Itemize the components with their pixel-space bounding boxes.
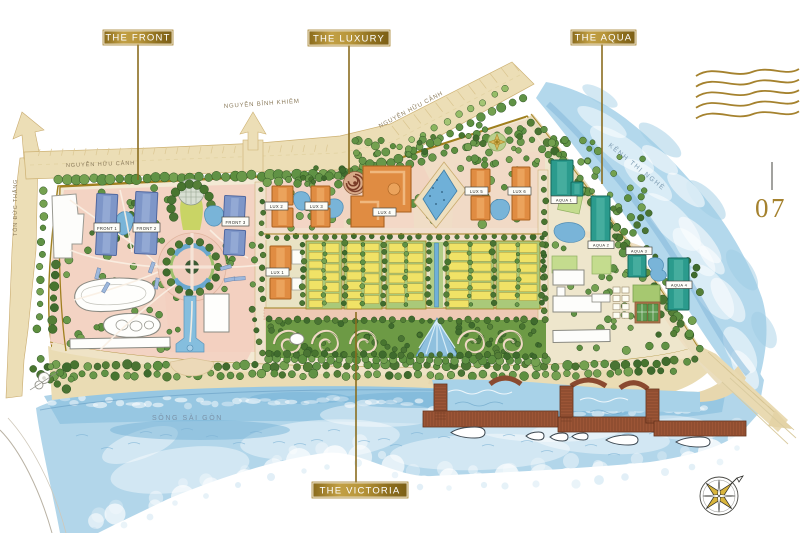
svg-text:THE AQUA: THE AQUA	[575, 33, 633, 44]
svg-text:LUX 4: LUX 4	[378, 210, 392, 215]
svg-text:FRONT 1: FRONT 1	[97, 226, 117, 231]
svg-text:THE VICTORIA: THE VICTORIA	[320, 486, 401, 497]
svg-text:LUX 5: LUX 5	[470, 189, 484, 194]
svg-text:07: 07	[755, 193, 787, 223]
svg-text:SÔNG SÀI GÒN: SÔNG SÀI GÒN	[152, 413, 223, 422]
svg-text:LUX 6: LUX 6	[513, 189, 527, 194]
svg-text:THE LUXURY: THE LUXURY	[313, 34, 385, 45]
svg-text:AQUA 3: AQUA 3	[631, 248, 648, 253]
svg-text:AQUA 2: AQUA 2	[593, 242, 610, 247]
svg-text:LUX 3: LUX 3	[310, 204, 324, 209]
svg-text:AQUA 1: AQUA 1	[556, 197, 573, 202]
svg-text:FRONT 2: FRONT 2	[137, 226, 157, 231]
svg-text:AQUA 4: AQUA 4	[671, 282, 688, 287]
svg-text:LUX 2: LUX 2	[270, 204, 284, 209]
svg-text:TÔN ĐỨC THẮNG: TÔN ĐỨC THẮNG	[11, 179, 19, 236]
svg-text:LUX 1: LUX 1	[271, 270, 285, 275]
svg-text:THE FRONT: THE FRONT	[105, 33, 170, 44]
svg-text:FRONT 3: FRONT 3	[226, 220, 246, 225]
